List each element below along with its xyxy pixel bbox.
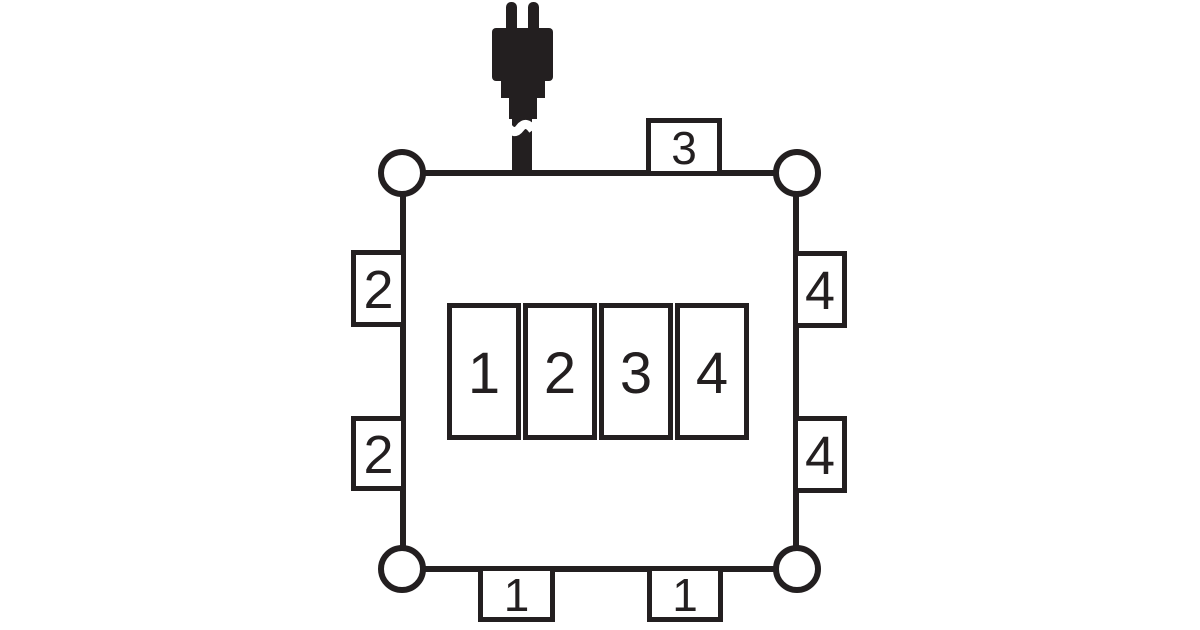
socket-cell-1: 1 bbox=[447, 303, 521, 440]
port-label-text: 3 bbox=[671, 125, 697, 171]
port-label-right-lower: 4 bbox=[793, 416, 847, 493]
port-label-bottom-left: 1 bbox=[478, 566, 555, 622]
port-label-text: 4 bbox=[805, 429, 835, 483]
port-label-text: 2 bbox=[363, 428, 393, 482]
corner-circle-top-left bbox=[378, 149, 426, 197]
port-label-left-upper: 2 bbox=[351, 250, 406, 327]
socket-cell-number: 1 bbox=[468, 345, 500, 403]
socket-cell-number: 2 bbox=[544, 345, 576, 403]
corner-circle-top-right bbox=[773, 149, 821, 197]
port-label-top: 3 bbox=[646, 118, 722, 176]
corner-circle-bottom-left bbox=[378, 545, 426, 593]
socket-cell-number: 4 bbox=[696, 345, 728, 403]
port-label-left-lower: 2 bbox=[351, 416, 406, 491]
port-label-text: 4 bbox=[805, 264, 835, 318]
port-label-bottom-right: 1 bbox=[647, 566, 723, 622]
diagram-canvas: 3 2 2 4 4 1 1 1 2 3 4 bbox=[0, 0, 1200, 630]
port-label-text: 1 bbox=[504, 572, 530, 618]
socket-cell-2: 2 bbox=[523, 303, 597, 440]
socket-cell-3: 3 bbox=[599, 303, 673, 440]
port-label-right-upper: 4 bbox=[793, 251, 847, 328]
socket-strip: 1 2 3 4 bbox=[447, 303, 749, 440]
port-label-text: 1 bbox=[672, 572, 698, 618]
corner-circle-bottom-right bbox=[773, 545, 821, 593]
port-label-text: 2 bbox=[363, 263, 393, 317]
power-plug-icon bbox=[488, 0, 558, 180]
socket-cell-number: 3 bbox=[620, 345, 652, 403]
socket-cell-4: 4 bbox=[675, 303, 749, 440]
